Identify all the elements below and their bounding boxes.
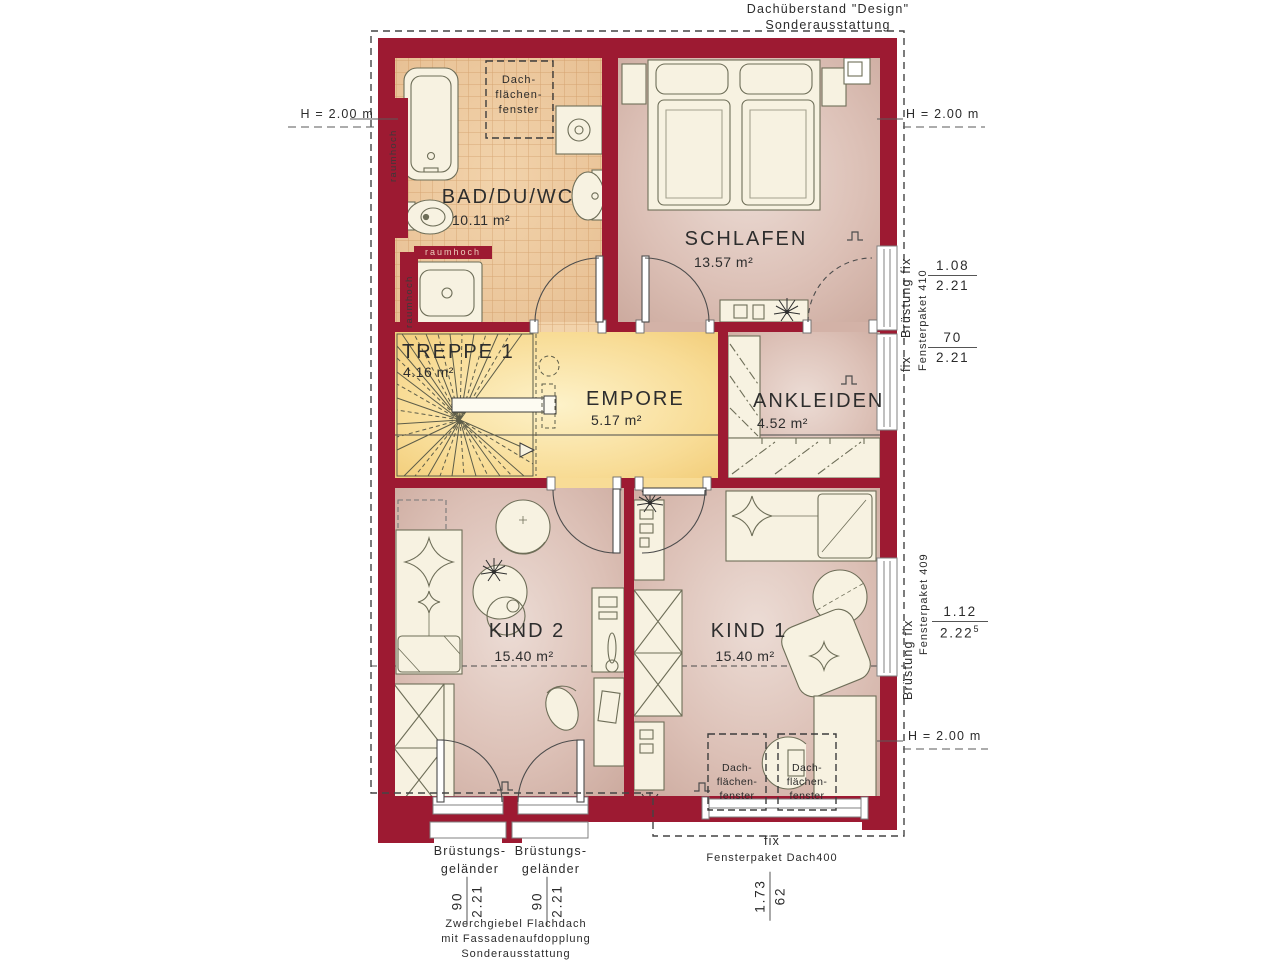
room-label-treppe: TREPPE 1 [402, 341, 515, 364]
balcony1-label-line2: geländer [441, 862, 499, 876]
room-label-ankleiden: ANKLEIDEN [753, 390, 884, 413]
room-label-empore: EMPORE [586, 388, 685, 411]
height-mark-right-top: H = 2.00 m [906, 107, 980, 121]
room-area-treppe: 4.16 m² [403, 364, 454, 380]
room-label-schlafen: SCHLAFEN [685, 228, 808, 251]
bottom-note-line1: Zwerchgiebel Flachdach [445, 918, 586, 930]
roof-window-frac-den: 62 [771, 871, 788, 920]
room-label-kind1: KIND 1 [711, 620, 787, 643]
balcony2-label-line1: Brüstungs- [515, 844, 587, 858]
skylight-kind1a-line3: fenster [720, 790, 755, 802]
height-mark-left: H = 2.00 m [301, 107, 375, 121]
skylight-kind1b-line3: fenster [790, 790, 825, 802]
window410-bruestung-label: Brüstung fix [899, 258, 913, 338]
window410-frac2-den: 2.21 [928, 348, 977, 365]
window410-frac2-num: 70 [928, 330, 977, 348]
bottom-note-line3: Sonderausstattung [461, 948, 570, 960]
window409-frac-num: 1.12 [932, 604, 988, 622]
room-area-kind1: 15.40 m² [715, 648, 774, 664]
window410-frac1: 1.08 2.21 [928, 258, 977, 293]
raumhoch-label-shower-top: raumhoch [425, 247, 481, 257]
window410-fix-label: fix [899, 356, 913, 372]
roof-window-frac-num: 1.73 [753, 871, 771, 920]
room-area-bad: 10.11 m² [452, 212, 510, 228]
bottom-note-line2: mit Fassadenaufdopplung [441, 933, 591, 945]
skylight-kind1a-line1: Dach- [722, 762, 752, 774]
window409-package-label: Fensterpaket 409 [918, 553, 930, 655]
roof-window-fix-label: fix [764, 834, 780, 848]
window410-frac2: 70 2.21 [928, 330, 977, 365]
skylight-kind1b-line2: flächen- [787, 776, 828, 788]
room-label-bad: BAD/DU/WC [442, 186, 574, 209]
roof-window-frac: 1.73 62 [753, 871, 788, 920]
window410-frac1-num: 1.08 [928, 258, 977, 276]
window409-frac: 1.12 2.225 [932, 604, 988, 641]
room-area-kind2: 15.40 m² [494, 648, 553, 664]
skylight-kind1a-line2: flächen- [717, 776, 758, 788]
room-area-ankleiden: 4.52 m² [757, 415, 808, 431]
raumhoch-label-tub: raumhoch [388, 129, 399, 182]
window409-frac-sup: 5 [973, 624, 980, 634]
balcony1-label-line1: Brüstungs- [434, 844, 506, 858]
roof-note-line1: Dachüberstand "Design" [747, 2, 909, 16]
height-mark-right-bottom: H = 2.00 m [908, 729, 982, 743]
window409-bruestung-label: Brüstung fix [901, 620, 915, 700]
room-label-kind2: KIND 2 [489, 620, 565, 643]
balcony2-label-line2: geländer [522, 862, 580, 876]
roof-window-package-label: Fensterpaket Dach400 [706, 852, 837, 864]
skylight-bad-line2: flächen- [495, 89, 542, 101]
room-area-schlafen: 13.57 m² [694, 254, 753, 270]
window410-frac1-den: 2.21 [928, 276, 977, 293]
room-area-empore: 5.17 m² [591, 412, 642, 428]
skylight-bad-line1: Dach- [502, 74, 536, 86]
roof-note-line2: Sonderausstattung [765, 18, 890, 32]
raumhoch-label-shower-side: raumhoch [404, 275, 415, 328]
floor-plan-page: Dachüberstand "Design" Sonderausstattung… [0, 0, 1280, 960]
skylight-kind1b-line1: Dach- [792, 762, 822, 774]
skylight-bad-line3: fenster [499, 104, 540, 116]
window409-frac-den: 2.225 [932, 622, 988, 641]
floor-plan-drawing [0, 0, 1280, 960]
